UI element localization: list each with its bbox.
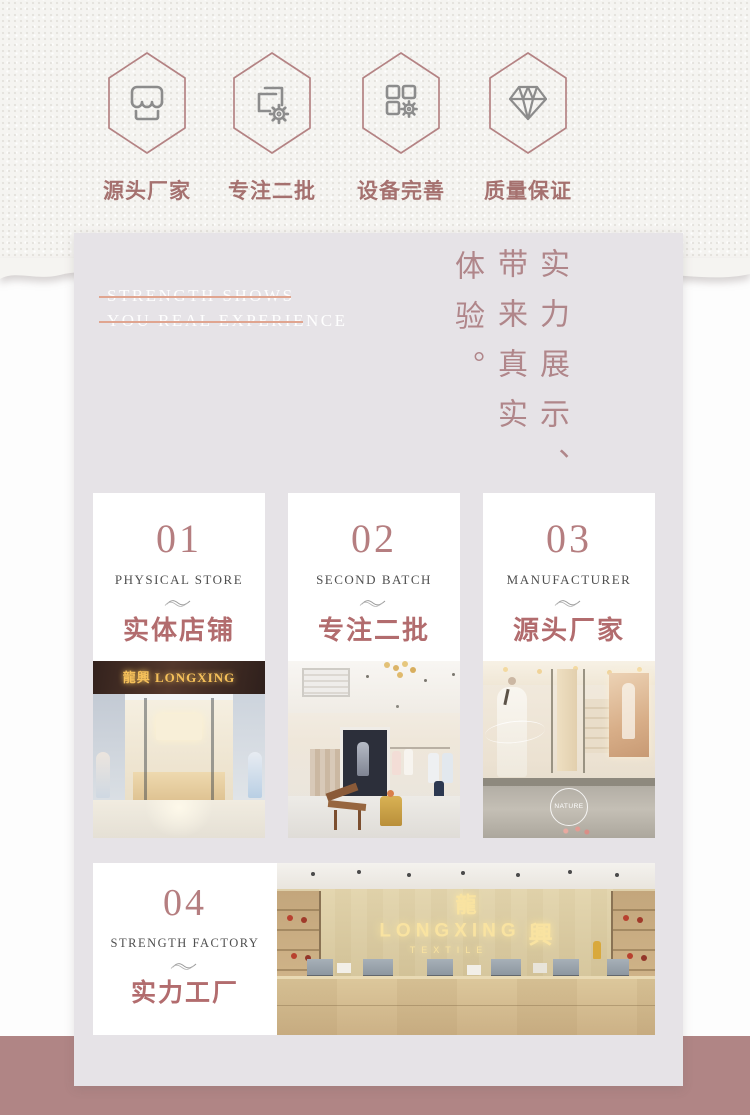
card-subtitle-en: PHYSICAL STORE <box>93 572 265 588</box>
hexagon-frame <box>483 51 573 155</box>
nature-badge: NATURE <box>550 788 588 826</box>
feature-quality-guarantee: 质量保证 <box>466 51 590 205</box>
reception-sign-line2: TEXTILE <box>277 946 621 955</box>
ac-vent <box>302 668 350 697</box>
card-strength-factory: 04 STRENGTH FACTORY 实力工厂 <box>93 863 277 1035</box>
vertical-headline-col-left: 体验。 <box>451 250 481 400</box>
feature-source-manufacturer: 源头厂家 <box>85 51 209 205</box>
en-headline-line1: STRENGTH SHOWS <box>107 286 295 306</box>
hexagon-frame <box>356 51 446 155</box>
storefront-photo: 龍興 LONGXING <box>93 661 265 838</box>
trophy <box>593 941 601 959</box>
reception-sign-cn-top: 龍 <box>277 895 655 916</box>
vertical-headline-col-middle: 带来真实 <box>494 248 524 448</box>
card-number: 01 <box>93 493 265 561</box>
feature-label: 专注二批 <box>210 175 334 205</box>
reception-desk <box>277 976 655 1035</box>
card-physical-store: 01 PHYSICAL STORE 实体店铺 龍興 LONGXING <box>93 493 265 838</box>
card-number: 03 <box>483 493 655 561</box>
glass-storefront-photo: NATURE <box>483 661 655 838</box>
card-number: 02 <box>288 493 460 561</box>
feature-label: 设备完善 <box>339 175 463 205</box>
card-title-cn: 实体店铺 <box>93 610 265 647</box>
factory-reception-photo: 龍 LONGXING興 TEXTILE <box>277 863 655 1035</box>
squiggle-divider-icon <box>554 597 584 607</box>
storefront-sign: 龍興 LONGXING <box>93 661 265 694</box>
wooden-chair <box>324 784 372 830</box>
feature-second-batch: 专注二批 <box>210 51 334 205</box>
card-subtitle-en: MANUFACTURER <box>483 572 655 588</box>
feature-label: 源头厂家 <box>85 175 209 205</box>
card-title-cn: 实力工厂 <box>93 973 277 1009</box>
feature-label: 质量保证 <box>466 175 590 205</box>
squiggle-divider-icon <box>359 597 389 607</box>
card-manufacturer: 03 MANUFACTURER 源头厂家 NATURE <box>483 493 655 838</box>
card-second-batch: 02 SECOND BATCH 专注二批 <box>288 493 460 838</box>
strike-line <box>99 321 303 323</box>
en-headline-line2: YOU REAL EXPERIENCE <box>107 311 347 331</box>
card-subtitle-en: STRENGTH FACTORY <box>93 936 277 951</box>
card-title-cn: 源头厂家 <box>483 610 655 647</box>
boutique-interior-photo <box>288 661 460 838</box>
squiggle-divider-icon <box>170 960 200 970</box>
strike-line <box>99 296 291 298</box>
documents-gear-icon <box>259 88 288 123</box>
card-number: 04 <box>93 863 277 925</box>
card-title-cn: 专注二批 <box>288 610 460 647</box>
reception-sign-line1: LONGXING <box>379 921 520 942</box>
squiggle-divider-icon <box>164 597 194 607</box>
card-subtitle-en: SECOND BATCH <box>288 572 460 588</box>
promo-page: 源头厂家 专注二批 <box>0 0 750 1115</box>
reception-sign-cn-right: 興 <box>529 924 553 948</box>
feature-complete-equipment: 设备完善 <box>339 51 463 205</box>
hexagon-frame <box>227 51 317 155</box>
hexagon-frame <box>102 51 192 155</box>
storefront-icon <box>132 87 162 119</box>
vertical-headline-col-right: 实力展示、 <box>536 248 566 498</box>
grid-gear-icon <box>387 86 417 117</box>
diamond-icon <box>510 87 546 119</box>
